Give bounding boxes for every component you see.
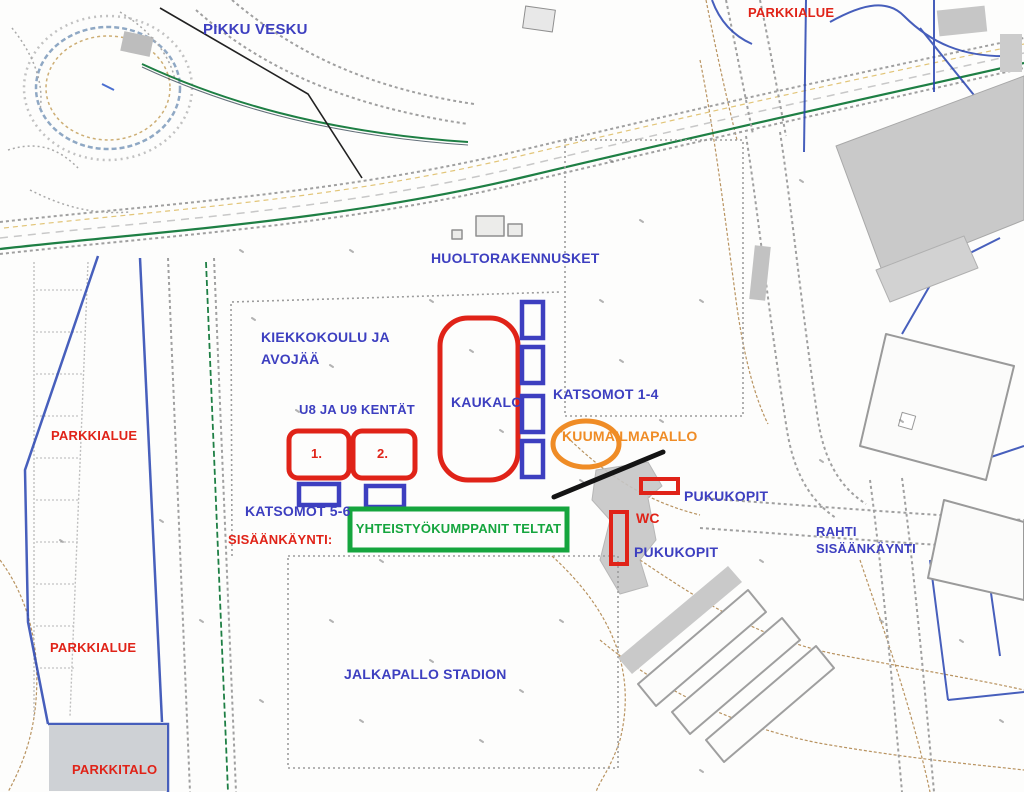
label-rahti-line2: SISÄÄNKÄYNTI [816,542,916,556]
label-pikku-vesku: PIKKU VESKU [203,22,308,39]
label-yhteistyokumppanit: YHTEISTYÖKUMPPANIT TELTAT [350,522,567,536]
label-wc: WC [636,511,660,526]
label-kiekkokoulu-line1: KIEKKOKOULU JA [261,330,390,345]
label-pukukopit-upper: PUKUKOPIT [684,489,768,504]
label-parkkialue-top: PARKKIALUE [748,6,834,20]
label-katsomot-5-6: KATSOMOT 5-6 [245,504,351,519]
label-parkkitalo: PARKKITALO [72,763,157,777]
label-kentta-1: 1. [311,447,322,461]
katsomo-3-box [522,396,543,432]
katsomo-2-box [522,347,543,383]
label-kentta-2: 2. [377,447,388,461]
label-parkkialue-left-lower: PARKKIALUE [50,641,136,655]
label-jalkapallo-stadion: JALKAPALLO STADION [344,667,507,682]
label-kaukalo: KAUKALO [451,395,522,410]
label-kiekkokoulu-line2: AVOJÄÄ [261,352,320,367]
label-u8-u9-kentat: U8 JA U9 KENTÄT [299,403,415,417]
label-pukukopit-lower: PUKUKOPIT [634,545,718,560]
label-katsomot-1-4: KATSOMOT 1-4 [553,387,659,402]
katsomo-6-box [366,486,404,507]
katsomo-1-box [522,302,543,338]
pukukopit-lower-box [611,512,627,564]
katsomo-5-box [299,484,339,505]
label-huoltorakennukset: HUOLTORAKENNUSKET [431,251,600,266]
pukukopit-upper-box [641,479,678,493]
label-parkkialue-left: PARKKIALUE [51,429,137,443]
label-sisaankaynti: SISÄÄNKÄYNTI: [228,533,332,547]
label-kuumailmapallo: KUUMAILMAPALLO [562,429,698,444]
label-rahti-line1: RAHTI [816,525,857,539]
katsomo-4-box [522,441,543,477]
event-area-map: PIKKU VESKU PARKKIALUE HUOLTORAKENNUSKET… [0,0,1024,792]
